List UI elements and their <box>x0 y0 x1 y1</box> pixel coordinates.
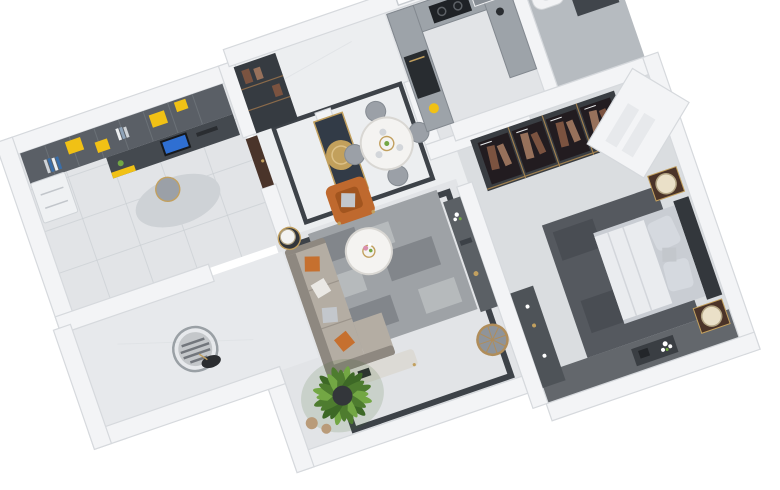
armchair-pillow <box>341 193 355 207</box>
sofa-pillow-orange-1 <box>305 256 320 271</box>
bed-accent-pillow <box>662 247 676 261</box>
sofa-pillow-gray <box>322 307 338 323</box>
apartment-render <box>0 0 780 490</box>
